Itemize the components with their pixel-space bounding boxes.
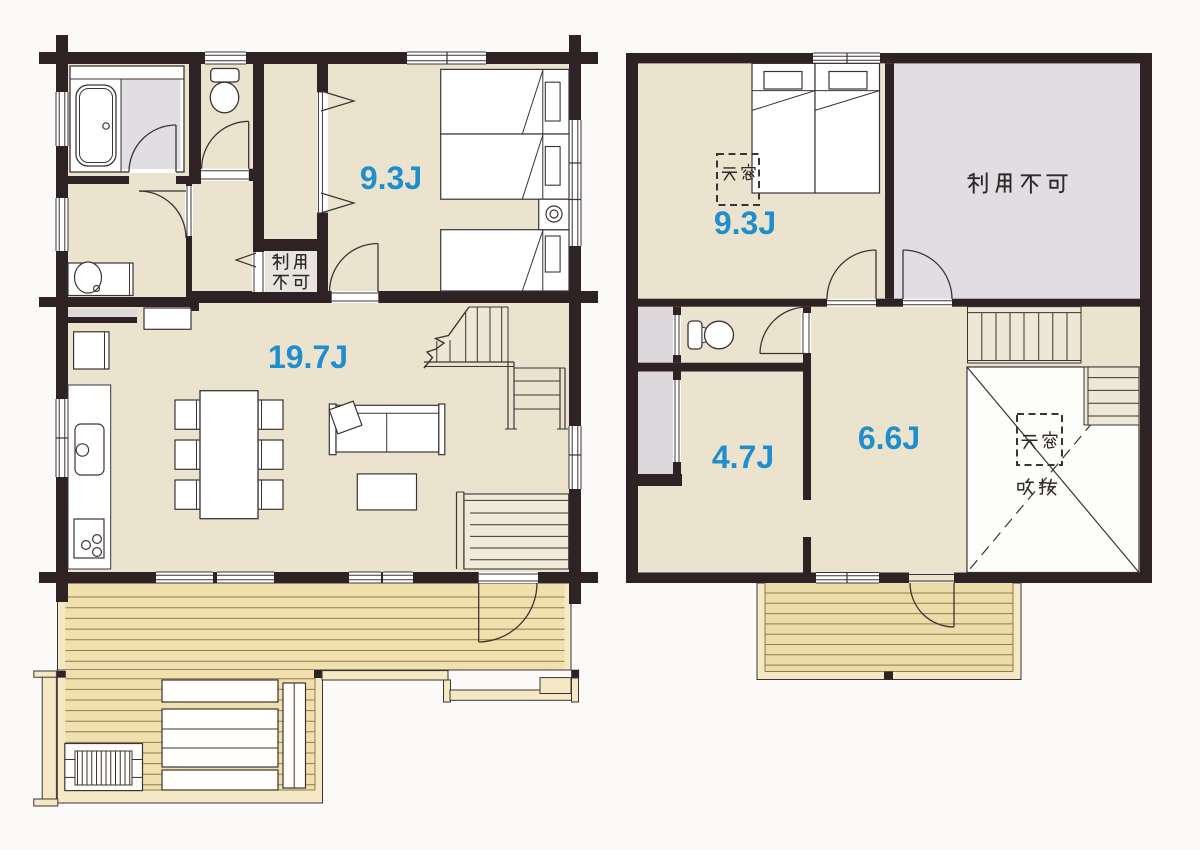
svg-text:19.7J: 19.7J [268, 339, 348, 375]
svg-text:9.3J: 9.3J [714, 205, 776, 241]
svg-text:4.7J: 4.7J [712, 439, 774, 475]
svg-text:6.6J: 6.6J [858, 420, 920, 456]
svg-text:9.3J: 9.3J [360, 160, 422, 196]
